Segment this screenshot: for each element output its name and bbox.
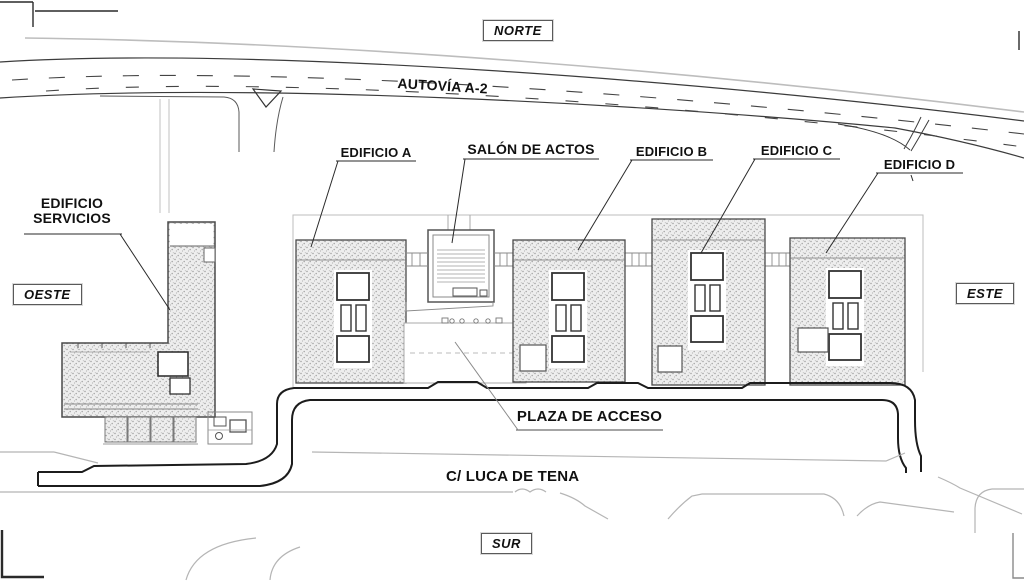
salon-de-actos xyxy=(428,215,494,302)
site-plan-linework xyxy=(0,0,1024,581)
label-servicios-line2: SERVICIOS xyxy=(33,210,111,226)
label-building-c: EDIFICIO C xyxy=(753,144,840,158)
compass-east: ESTE xyxy=(956,283,1014,304)
compass-south: SUR xyxy=(481,533,532,554)
label-servicios: EDIFICIO SERVICIOS xyxy=(20,196,124,226)
building-b xyxy=(513,240,625,382)
label-building-a: EDIFICIO A xyxy=(336,146,416,160)
label-servicios-line1: EDIFICIO xyxy=(41,195,103,211)
entrance-recess xyxy=(404,302,526,383)
site-plan-drawing: NORTE OESTE ESTE SUR AUTOVÍA A-2 C/ LUCA… xyxy=(0,0,1024,581)
label-building-d: EDIFICIO D xyxy=(876,158,963,172)
label-plaza: PLAZA DE ACCESO xyxy=(516,409,663,425)
compass-west: OESTE xyxy=(13,284,82,305)
building-d xyxy=(790,238,905,385)
highway-a2 xyxy=(0,38,1024,158)
building-c xyxy=(652,219,765,385)
street-label: C/ LUCA DE TENA xyxy=(446,469,579,485)
compass-north: NORTE xyxy=(483,20,553,41)
building-a xyxy=(296,240,406,383)
label-building-b: EDIFICIO B xyxy=(630,145,713,159)
label-salon: SALÓN DE ACTOS xyxy=(463,142,599,157)
building-servicios xyxy=(62,222,215,417)
access-ramp xyxy=(100,89,283,213)
